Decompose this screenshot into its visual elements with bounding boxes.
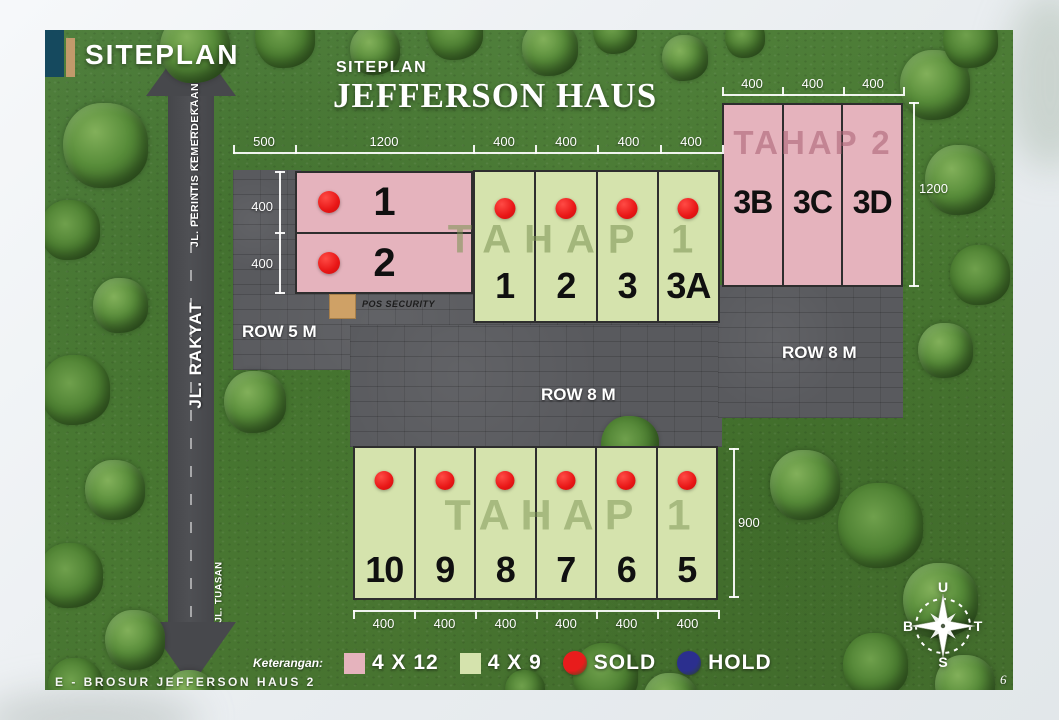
row-label-8m-east: ROW 8 M <box>782 343 857 363</box>
project-title: JEFFERSON HAUS <box>333 76 657 116</box>
sold-dot <box>556 471 575 490</box>
legend-label: SOLD <box>594 651 656 675</box>
lot-10: 10 <box>355 448 414 598</box>
lot-block-pink-north: 12 <box>295 171 473 294</box>
paved-area <box>233 170 301 300</box>
dimension-label: 400 <box>241 199 273 214</box>
lot-number: 10 <box>355 552 414 588</box>
compass-east-label: T <box>974 618 983 634</box>
legend-dot <box>563 651 587 675</box>
dimension-label: 400 <box>493 134 515 149</box>
security-post <box>329 294 356 319</box>
lot-2: 2 <box>297 232 471 293</box>
lot-number: 5 <box>658 552 717 588</box>
dimension-line <box>279 171 281 294</box>
siteplan-map: POS SECURITY JL. PERINTIS KEMERDEKAAN JL… <box>45 30 1013 690</box>
dimension-label: 400 <box>241 256 273 271</box>
dimension-line: 400400400400400400 <box>353 610 718 630</box>
security-post-label: POS SECURITY <box>362 299 435 309</box>
dimension-label: 1200 <box>370 134 399 149</box>
dimension-line <box>913 102 915 287</box>
tree <box>918 323 973 378</box>
paved-area <box>350 325 722 447</box>
tree <box>45 543 103 608</box>
sold-dot <box>555 198 576 219</box>
legend-dot <box>677 651 701 675</box>
row-label-8m-center: ROW 8 M <box>541 385 616 405</box>
lot-number: 8 <box>476 552 535 588</box>
sold-dot <box>375 471 394 490</box>
lot-number: 3C <box>784 186 842 218</box>
dimension-label: 400 <box>555 134 577 149</box>
dimension-label: 400 <box>618 134 640 149</box>
legend-label: 4 X 12 <box>372 651 439 675</box>
compass-north-label: U <box>938 580 948 595</box>
dimension-label: 1200 <box>919 181 948 196</box>
tree <box>950 245 1010 305</box>
siteplan-subtitle: SITEPLAN <box>336 59 427 77</box>
sold-dot <box>617 471 636 490</box>
page-title: SITEPLAN <box>85 39 239 71</box>
legend-item-hold: HOLD <box>677 651 772 675</box>
sold-dot <box>678 198 699 219</box>
legend-swatch <box>460 653 481 674</box>
dimension-label: 500 <box>253 134 275 149</box>
tree <box>63 103 148 188</box>
lot-number: 3 <box>598 268 657 304</box>
page-number: 6 <box>1000 672 1007 688</box>
brand-accent-tan <box>66 38 75 77</box>
compass-rose-icon: U T S B <box>901 580 985 668</box>
dimension-label: 400 <box>862 76 884 91</box>
background-blob <box>0 690 200 720</box>
sold-dot <box>494 198 515 219</box>
dimension-label: 400 <box>434 616 456 631</box>
compass-west-label: B <box>903 618 913 634</box>
lot-number: 3A <box>659 268 718 304</box>
dimension-line: 400400400 <box>722 76 903 96</box>
footer-note: E - BROSUR JEFFERSON HAUS 2 <box>55 675 316 689</box>
tree <box>838 483 923 568</box>
sold-dot <box>617 198 638 219</box>
sold-dot <box>677 471 696 490</box>
street-name-tuasan: JL. TUASAN <box>214 562 225 623</box>
tree <box>662 35 708 81</box>
tree <box>224 371 286 433</box>
dimension-label: 400 <box>677 616 699 631</box>
tree <box>843 633 908 691</box>
legend-item-sold: SOLD <box>563 651 656 675</box>
tree <box>105 610 165 670</box>
phase-watermark-tahap2: TAHAP 2 <box>733 124 892 162</box>
row-label-5m: ROW 5 M <box>242 322 317 342</box>
background-blob <box>1005 0 1059 170</box>
phase-watermark-tahap1-south: TAHAP 1 <box>445 492 702 541</box>
lot-number: 1 <box>475 268 534 304</box>
dimension-label: 400 <box>741 76 763 91</box>
tree <box>770 450 840 520</box>
tree <box>593 30 637 54</box>
tree <box>427 30 483 60</box>
lot-number: 6 <box>597 552 656 588</box>
legend-swatch <box>344 653 365 674</box>
sold-dot <box>318 191 340 213</box>
tree <box>255 30 315 68</box>
lot-number: 9 <box>416 552 475 588</box>
dimension-label: 400 <box>802 76 824 91</box>
tree <box>45 355 110 425</box>
lot-number: 2 <box>536 268 595 304</box>
sold-dot <box>318 252 340 274</box>
dimension-label: 900 <box>738 515 760 530</box>
brochure-page: POS SECURITY JL. PERINTIS KEMERDEKAAN JL… <box>0 0 1059 720</box>
lot-number: 3D <box>843 186 901 218</box>
dimension-label: 400 <box>555 616 577 631</box>
lot-number: 3B <box>724 186 782 218</box>
sold-dot <box>435 471 454 490</box>
phase-watermark-tahap1-north: TAHAP 1 <box>448 218 706 263</box>
tree <box>522 30 578 76</box>
lot-1: 1 <box>297 173 471 232</box>
sold-dot <box>496 471 515 490</box>
brand-accent-navy <box>45 30 64 77</box>
dimension-line <box>733 448 735 598</box>
tree <box>93 278 148 333</box>
tree <box>85 460 145 520</box>
legend-label: 4 X 9 <box>488 651 542 675</box>
legend-title: Keterangan: <box>253 656 323 670</box>
street-name-rakyat: JL. RAKYAT <box>186 301 206 408</box>
tree <box>925 145 995 215</box>
tree <box>725 30 765 58</box>
legend-item-4-x-12: 4 X 12 <box>344 651 439 675</box>
legend-item-4-x-9: 4 X 9 <box>460 651 542 675</box>
legend-label: HOLD <box>708 651 772 675</box>
street-name-perintis: JL. PERINTIS KEMERDEKAAN <box>189 83 201 247</box>
dimension-label: 400 <box>495 616 517 631</box>
lot-number: 7 <box>537 552 596 588</box>
dimension-label: 400 <box>680 134 702 149</box>
dimension-label: 400 <box>616 616 638 631</box>
dimension-line: 5001200400400400400 <box>233 134 722 154</box>
tree <box>45 200 100 260</box>
compass-south-label: S <box>938 654 947 668</box>
dimension-label: 400 <box>373 616 395 631</box>
legend: Keterangan: 4 X 124 X 9SOLDHOLD <box>253 648 772 678</box>
